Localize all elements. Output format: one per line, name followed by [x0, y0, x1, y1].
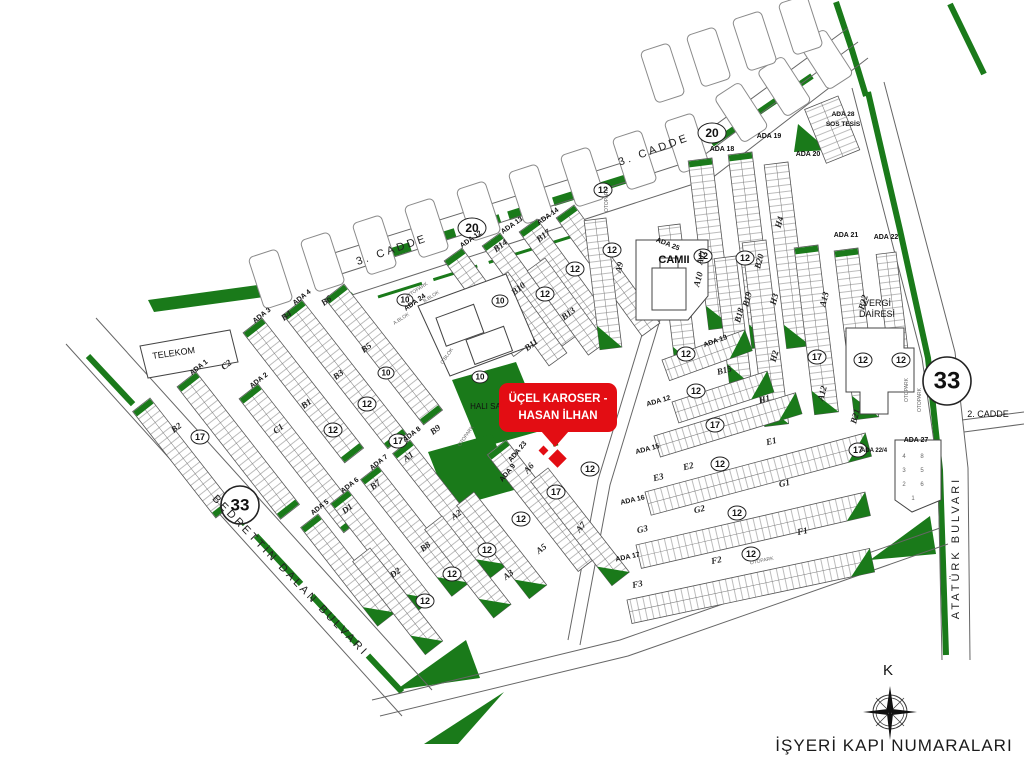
- map-label: OTOPARK: [604, 187, 610, 212]
- map-label: ADA 16: [620, 494, 646, 506]
- map-label: B9: [427, 422, 443, 437]
- road-shield: 12: [687, 384, 705, 398]
- shield-number: 12: [896, 355, 906, 365]
- street-stub: [300, 232, 345, 293]
- callout-pointer-icon: [541, 431, 569, 447]
- road-shield: 12: [736, 251, 754, 265]
- shield-number: 33: [934, 368, 961, 395]
- map-label: F3: [630, 578, 644, 590]
- map-label: ADA 18: [710, 146, 735, 153]
- road-shield: 12: [892, 353, 910, 367]
- map-label: G2: [693, 503, 706, 515]
- shield-number: 12: [328, 425, 338, 435]
- map-label: SOS TESİS: [826, 120, 861, 128]
- street-stub: [732, 11, 777, 72]
- road-shield: 10: [378, 367, 394, 379]
- map-label: A9: [613, 260, 626, 274]
- street-stub: [686, 27, 731, 88]
- road-shield: 12: [677, 347, 695, 361]
- callout-line2: HASAN İLHAN: [499, 408, 617, 425]
- compass-rose-icon: [860, 684, 920, 742]
- map-label: F2: [709, 554, 723, 566]
- map-label: ADA 28: [832, 111, 855, 118]
- map-label: ADA 15: [635, 443, 661, 456]
- road-shield: 12: [512, 512, 530, 526]
- road-shield: 12: [854, 353, 872, 367]
- green-median-strip: [950, 4, 984, 74]
- map-label: A.BLOK: [392, 311, 411, 326]
- map-label: VERGİ: [863, 298, 891, 308]
- road-shield: 12: [324, 423, 342, 437]
- road-shield: 12: [443, 567, 461, 581]
- map-label: ADA 22: [874, 234, 899, 241]
- map-label: ADA 21: [834, 232, 859, 239]
- map-label: ADA 8: [402, 426, 423, 444]
- site-plan-map: 2020333317171717171712121212121212121212…: [0, 0, 1024, 767]
- shield-number: 12: [516, 514, 526, 524]
- green-area: [870, 516, 936, 560]
- shield-number: 12: [732, 508, 742, 518]
- shield-number: 12: [570, 264, 580, 274]
- road-line: [568, 315, 648, 640]
- map-label: ADA 12: [646, 395, 672, 409]
- callout-line1: ÜÇEL KAROSER -: [499, 391, 617, 408]
- shield-number: 12: [746, 549, 756, 559]
- map-label: ADA 22/4: [861, 448, 888, 454]
- shield-number: 12: [858, 355, 868, 365]
- map-label: DAİRESİ: [859, 309, 895, 319]
- shield-number: 17: [812, 352, 822, 362]
- road-shield: 17: [808, 350, 826, 364]
- building: [652, 268, 686, 310]
- shield-number: 12: [607, 245, 617, 255]
- map-label: 2. CADDE: [967, 409, 1009, 419]
- road-line: [964, 424, 1024, 432]
- road-shield: 10: [472, 371, 488, 383]
- road-shield: 12: [358, 397, 376, 411]
- green-area: [396, 640, 480, 690]
- road-shield: 17: [547, 485, 565, 499]
- map-label: ATATÜRK BULVARI: [950, 477, 962, 619]
- road-shield: 12: [603, 243, 621, 257]
- road-shield: 12: [416, 594, 434, 608]
- map-label: B21: [848, 408, 862, 426]
- map-label: ADA 17: [615, 552, 641, 564]
- map-label: F1: [795, 525, 808, 537]
- shield-number: 12: [691, 386, 701, 396]
- map-label: H3: [768, 292, 781, 307]
- shield-number: 20: [705, 126, 719, 140]
- shield-number: 17: [195, 432, 205, 442]
- street-stub: [640, 43, 685, 104]
- map-label: OTOPARK: [904, 377, 910, 402]
- shield-number: 12: [681, 349, 691, 359]
- map-label: ADA 27: [904, 437, 929, 444]
- shield-number: 12: [715, 459, 725, 469]
- road-shield: 33: [923, 357, 971, 405]
- map-label: ADA 19: [757, 133, 782, 140]
- map-label: E2: [681, 460, 695, 473]
- shield-number: 10: [382, 369, 391, 378]
- map-label: G3: [636, 523, 649, 535]
- shield-number: 10: [496, 297, 505, 306]
- shield-number: 17: [551, 487, 561, 497]
- road-shield: 12: [728, 506, 746, 520]
- road-shield: 10: [492, 295, 508, 307]
- shield-number: 12: [482, 545, 492, 555]
- building: [895, 440, 941, 512]
- map-label: E1: [764, 435, 778, 447]
- map-label: E3: [651, 471, 665, 484]
- road-shield: 12: [536, 287, 554, 301]
- map-label: OTOPARK: [917, 387, 923, 412]
- street-stub: [778, 0, 823, 55]
- shield-number: 12: [362, 399, 372, 409]
- road-shield: 17: [706, 418, 724, 432]
- road-shield: 12: [581, 462, 599, 476]
- street-stub: [248, 249, 293, 310]
- location-callout[interactable]: ÜÇEL KAROSER - HASAN İLHAN: [499, 383, 617, 432]
- shield-number: 12: [585, 464, 595, 474]
- parcel-midline: [648, 445, 868, 504]
- shield-number: 12: [540, 289, 550, 299]
- north-letter: K: [883, 662, 893, 679]
- green-area: [424, 692, 504, 744]
- road-shield: 12: [566, 262, 584, 276]
- map-label: ADA 20: [796, 151, 821, 158]
- parcel-midline: [629, 560, 872, 612]
- shield-number: 10: [476, 373, 485, 382]
- map-title: İŞYERİ KAPI NUMARALARI: [770, 736, 1018, 756]
- shield-number: 17: [710, 420, 720, 430]
- road-shield: 12: [478, 543, 496, 557]
- shield-number: 12: [740, 253, 750, 263]
- shield-number: 12: [420, 596, 430, 606]
- road-shield: 12: [711, 457, 729, 471]
- road-shield: 17: [191, 430, 209, 444]
- map-label: G1: [778, 477, 791, 489]
- shield-number: 12: [447, 569, 457, 579]
- road-shield: 20: [698, 123, 726, 143]
- map-label: A5: [533, 541, 549, 556]
- map-label: CAMII: [658, 254, 689, 266]
